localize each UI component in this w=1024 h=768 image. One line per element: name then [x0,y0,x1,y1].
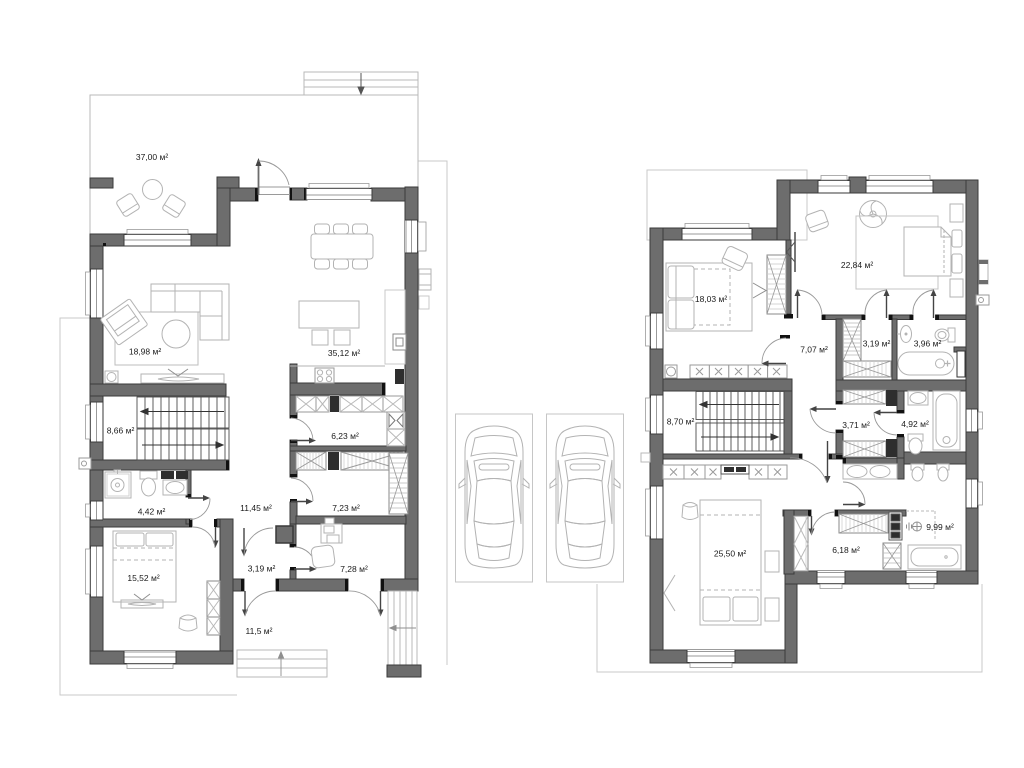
svg-text:3,19 м²: 3,19 м² [248,564,276,574]
svg-text:8,66 м²: 8,66 м² [107,426,135,436]
svg-text:4,92 м²: 4,92 м² [901,419,929,429]
svg-text:25,50 м²: 25,50 м² [714,549,746,559]
svg-text:18,98 м²: 18,98 м² [129,347,161,357]
svg-text:35,12 м²: 35,12 м² [328,348,360,358]
svg-text:11,45 м²: 11,45 м² [240,503,272,513]
svg-text:6,18 м²: 6,18 м² [832,545,860,555]
svg-text:3,71 м²: 3,71 м² [842,420,870,430]
svg-text:6,23 м²: 6,23 м² [331,431,359,441]
svg-text:8,70 м²: 8,70 м² [667,417,695,427]
svg-text:3,19 м²: 3,19 м² [863,339,891,349]
svg-text:3,96 м²: 3,96 м² [914,339,942,349]
svg-text:9,99 м²: 9,99 м² [926,522,954,532]
svg-text:22,84 м²: 22,84 м² [841,260,873,270]
svg-text:7,23 м²: 7,23 м² [332,503,360,513]
svg-text:7,07 м²: 7,07 м² [800,345,828,355]
svg-text:11,5 м²: 11,5 м² [246,626,273,636]
svg-text:18,03 м²: 18,03 м² [695,294,727,304]
svg-text:15,52 м²: 15,52 м² [127,573,159,583]
svg-text:37,00 м²: 37,00 м² [136,152,168,162]
svg-text:4,42 м²: 4,42 м² [138,507,166,517]
svg-text:7,28 м²: 7,28 м² [340,564,368,574]
